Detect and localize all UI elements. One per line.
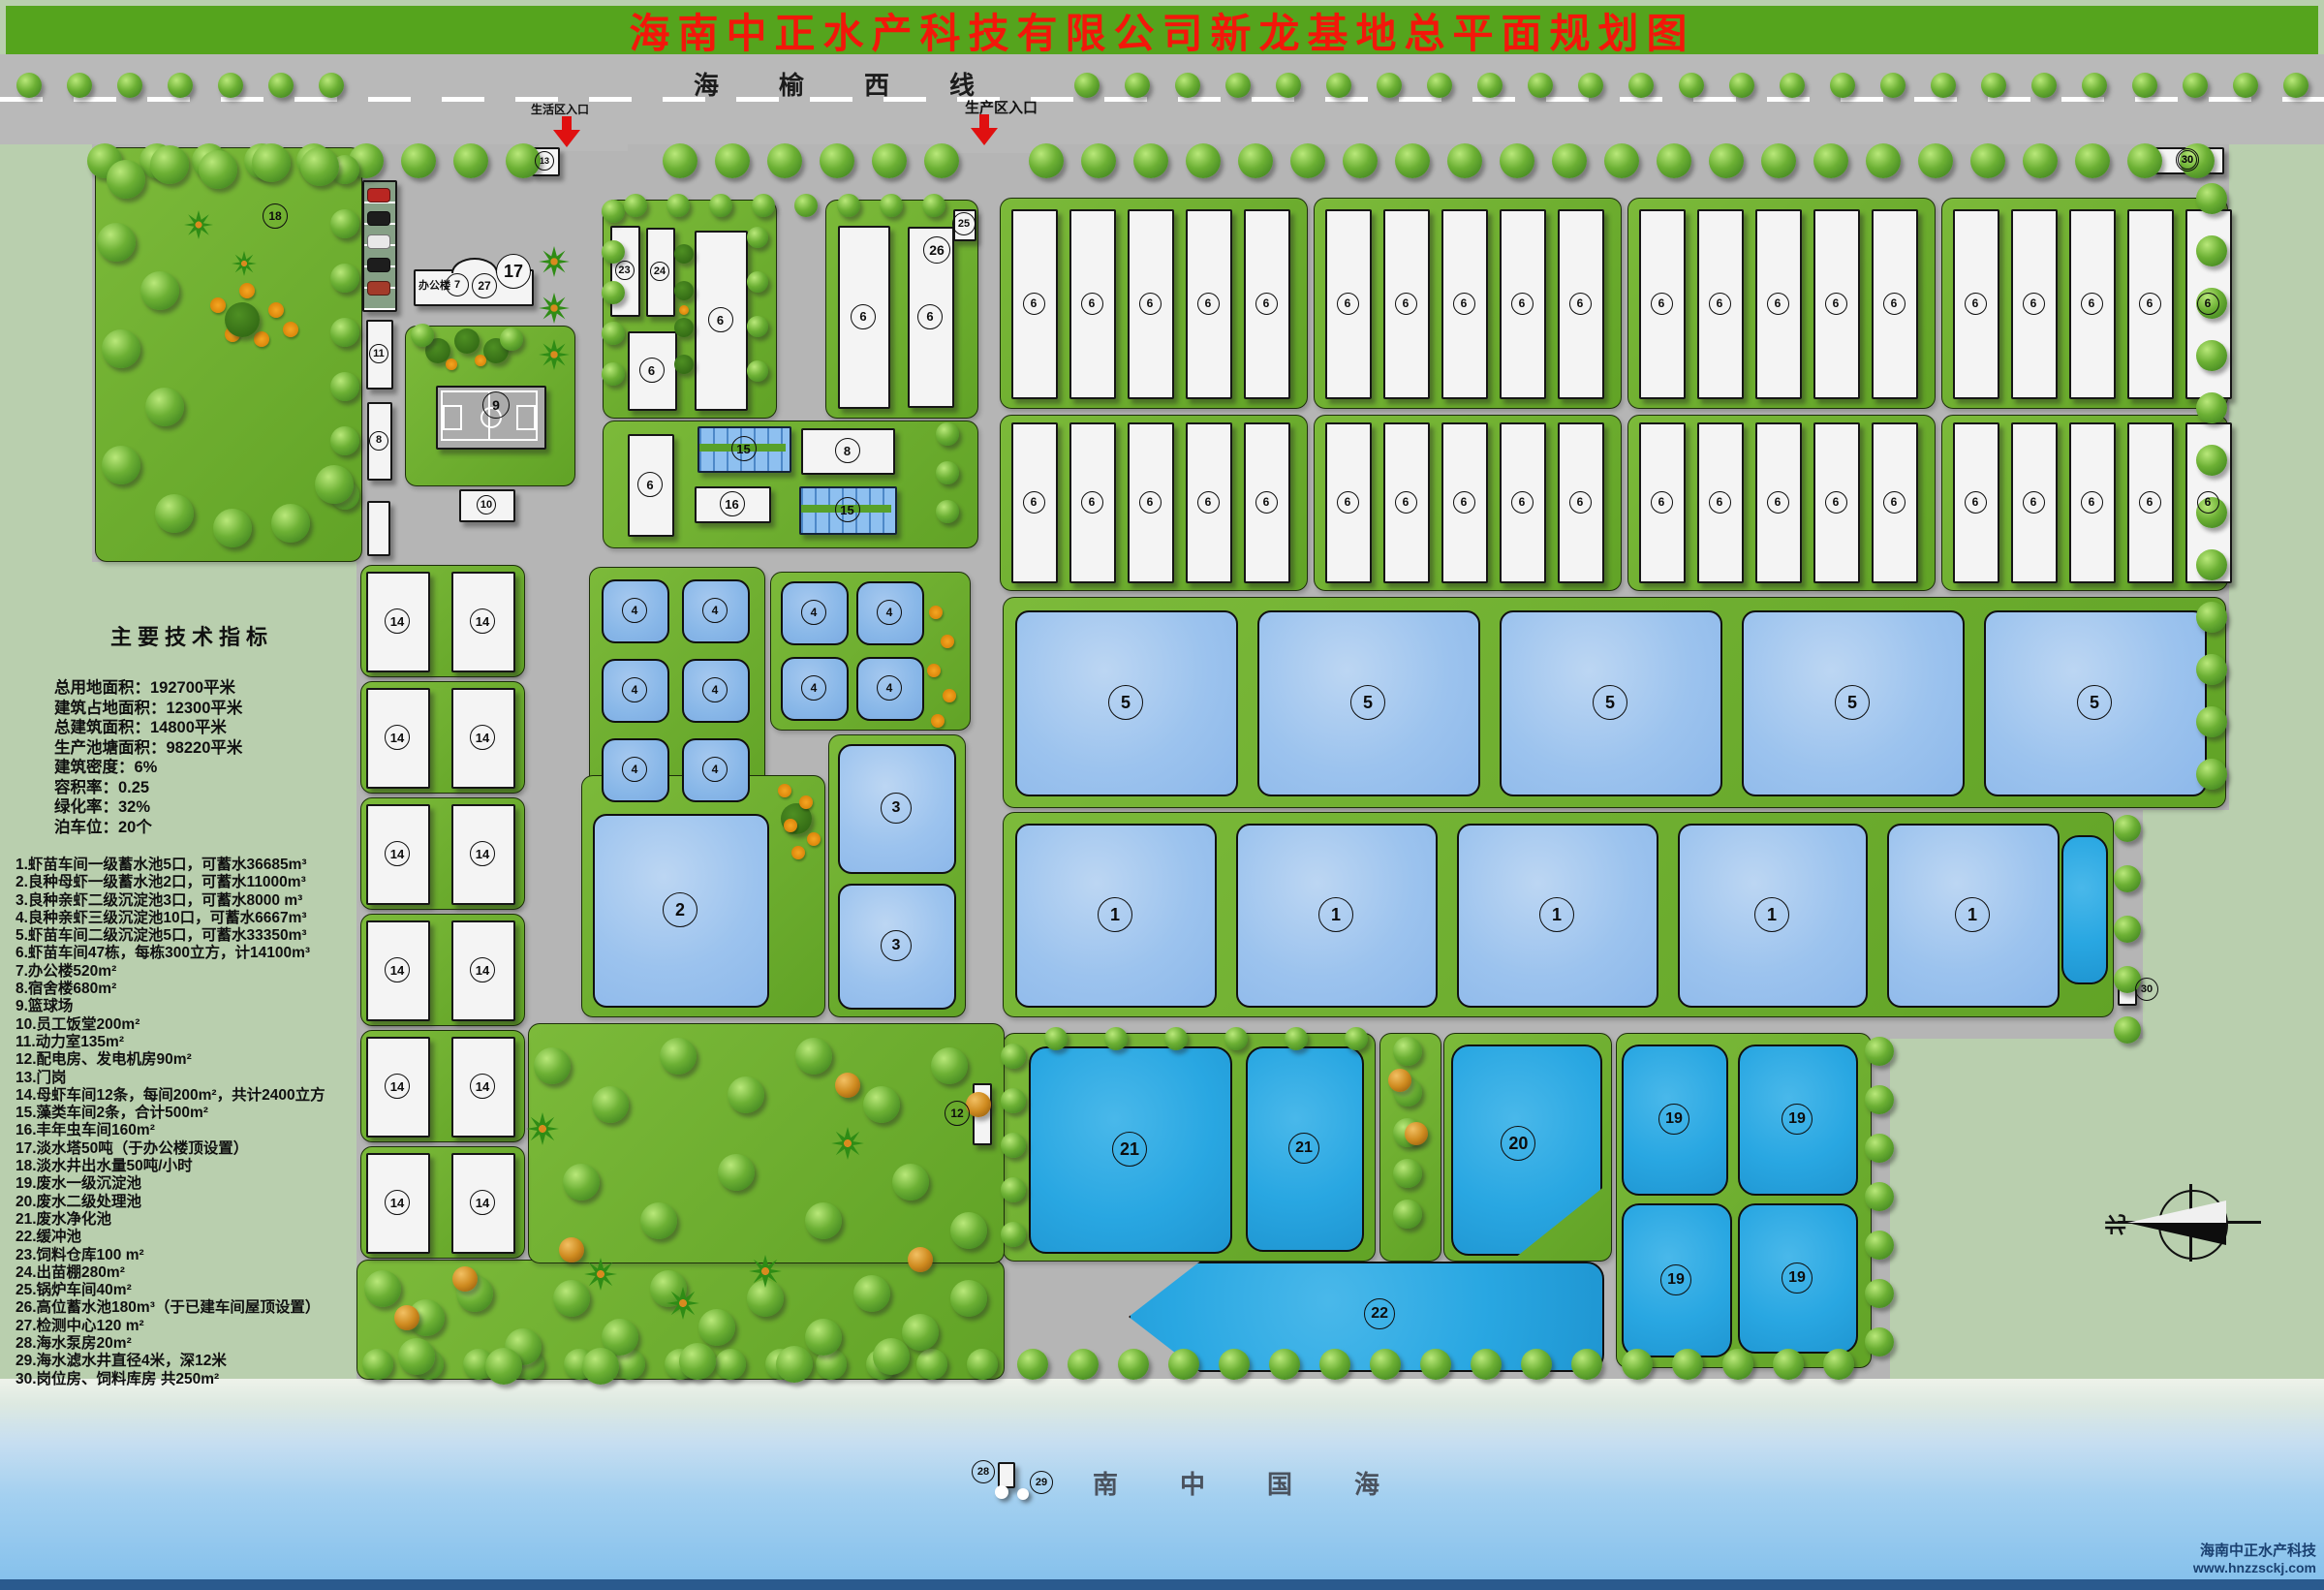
marker-27: 27 [472,273,497,298]
tree [1865,1134,1894,1163]
marker-19: 19 [1782,1104,1813,1135]
marker-18: 18 [263,203,288,229]
tree [446,359,457,370]
tree [1709,143,1744,178]
tree [1865,1182,1894,1211]
tree [679,1343,716,1380]
tree [315,465,354,504]
tree [709,194,732,217]
legend-item: 28.海水泵房20m² [15,1335,325,1353]
tree [1427,73,1452,98]
tree [1393,1037,1422,1066]
highway-road: 海榆西线 [0,54,2324,144]
legend-list: 1.虾苗车间一级蓄水池5口，可蓄水36685m³2.良种母虾一级蓄水池2口，可蓄… [15,857,325,1388]
marker-6: 6 [708,307,733,332]
tree [283,322,298,337]
tree [1578,73,1603,98]
tree [268,302,284,318]
marker-6: 6 [1453,491,1475,514]
marker-6: 6 [1651,491,1673,514]
marker-15: 15 [731,436,757,461]
marker-6: 6 [2023,293,2045,315]
marker-15: 15 [835,497,860,522]
road-centerline [0,97,2324,102]
marker-6: 6 [1965,293,1987,315]
sea-bottom-bar [0,1579,2324,1590]
tree [795,1038,832,1075]
marker-1: 1 [1955,897,1990,932]
marker-6: 6 [1337,491,1359,514]
marker-14: 14 [385,608,410,634]
tree [674,244,694,264]
tree [1528,73,1553,98]
tree [2233,73,2258,98]
tree [929,606,943,619]
tree [411,324,434,347]
tree [592,1086,629,1123]
marker-14: 14 [470,608,495,634]
tree [330,264,359,293]
tree [873,1338,910,1375]
tree [2196,549,2227,580]
tree [199,150,237,189]
tree [1017,1349,1048,1380]
marker-4: 4 [622,677,647,702]
marker-6: 6 [1255,491,1278,514]
tree [1125,73,1150,98]
tree [454,328,480,354]
tree [168,73,193,98]
marker-6: 6 [1569,293,1592,315]
tree [1319,1349,1350,1380]
tree [1918,143,1953,178]
tree [799,795,813,809]
tree [747,227,768,248]
marker-5: 5 [1593,685,1627,720]
tree [943,689,956,702]
marker-14: 14 [385,725,410,750]
technical-indicators: 主要技术指标 总用地面积：192700平米建筑占地面积：12300平米总建筑面积… [54,620,273,837]
tree [791,846,805,859]
tree [1571,1349,1602,1380]
marker-6: 6 [2023,491,2045,514]
tree [1420,1349,1451,1380]
marker-6: 6 [1569,491,1592,514]
marker-1: 1 [1539,897,1574,932]
legend-item: 24.出苗棚280m² [15,1264,325,1282]
marker-6: 6 [1453,293,1475,315]
marker-26: 26 [923,236,950,264]
marker-14: 14 [385,1190,410,1215]
tree [2196,706,2227,737]
marker-4: 4 [702,677,728,702]
tree [1224,1027,1248,1050]
marker-6: 6 [1883,491,1906,514]
legend-item: 17.淡水塔50吨（于办公楼顶设置） [15,1140,325,1158]
marker-29: 29 [1030,1471,1053,1494]
tree [1104,1027,1128,1050]
tree [1393,1200,1422,1229]
marker-4: 4 [702,757,728,782]
tree [539,246,570,277]
tree [718,1154,755,1191]
tree [2114,865,2141,892]
marker-6: 6 [2197,293,2219,315]
legend-item: 5.虾苗车间二级沉淀池5口，可蓄水33350m³ [15,927,325,945]
marker-6: 6 [1883,293,1906,315]
indicator-line: 建筑占地面积：12300平米 [54,699,273,719]
tree [747,316,768,337]
legend-item: 3.良种亲虾二级沉淀池3口，可蓄水8000 m³ [15,892,325,910]
tree [553,1280,590,1317]
marker-6: 6 [2081,293,2103,315]
page-title: 海南中正水产科技有限公司新龙基地总平面规划图 [629,1,1694,60]
tree [2075,143,2110,178]
tree [239,283,255,298]
tree [2196,183,2227,214]
tree [1326,73,1351,98]
marker-6: 6 [1255,293,1278,315]
tree [1813,143,1848,178]
marker-6: 6 [1395,491,1417,514]
marker-6: 6 [917,304,943,329]
tree [145,388,184,426]
tree [155,494,194,533]
marker-4: 4 [801,675,826,701]
building-small [367,501,390,556]
marker-6: 6 [1825,293,1847,315]
entrance-arrow-living [553,116,580,147]
tree [784,819,797,832]
legend-item: 10.员工饭堂200m² [15,1016,325,1034]
tree [582,1348,619,1385]
tree [394,1305,419,1330]
marker-14: 14 [385,841,410,866]
tree [232,251,257,276]
tree [2114,815,2141,842]
legend-item: 6.虾苗车间47栋，每栋300立方，计14100m³ [15,945,325,962]
tree [1970,143,2005,178]
tree [880,194,903,217]
marker-12: 12 [945,1101,970,1126]
marker-23: 23 [615,261,635,280]
tree [1175,73,1200,98]
marker-24: 24 [650,262,669,281]
tree [584,1258,617,1291]
tree [1405,1122,1428,1145]
tree [16,73,42,98]
marker-4: 4 [877,675,902,701]
watermark: 海南中正水产科技 www.hnzzsckj.com [2193,1540,2316,1575]
tree [1729,73,1754,98]
tree [941,635,954,648]
tree [908,1247,933,1272]
tree [698,1309,735,1346]
marker-21: 21 [1288,1133,1319,1164]
tree [1276,73,1301,98]
tree [805,1202,842,1239]
marker-6: 6 [1395,293,1417,315]
tree [102,446,140,484]
tree [1377,73,1402,98]
tree [663,143,697,178]
legend-item: 1.虾苗车间一级蓄水池5口，可蓄水36685m³ [15,857,325,874]
tree [1388,1069,1411,1092]
tree [252,143,291,182]
indicator-line: 生产池塘面积：98220平米 [54,738,273,759]
tree [1830,73,1855,98]
tree [2127,143,2162,178]
tree [1395,143,1430,178]
tree [398,1338,435,1375]
marker-6: 6 [851,304,876,329]
well-dot [1017,1488,1029,1500]
tree [140,271,179,310]
tree [1471,1349,1502,1380]
marker-6: 6 [1139,491,1162,514]
marker-10: 10 [477,495,496,514]
tree [526,1112,559,1145]
tree [210,297,226,313]
tree [916,1349,947,1380]
legend-item: 4.良种亲虾三级沉淀池10口，可蓄水6667m³ [15,910,325,927]
site-plan-canvas: 444444444423355555111112121201919191922办… [0,0,2324,1590]
marker-28: 28 [972,1460,995,1483]
marker-5: 5 [1835,685,1870,720]
tree [1393,1159,1422,1188]
marker-14: 14 [470,725,495,750]
tree [475,355,486,366]
tree [2114,916,2141,943]
indicator-line: 容积率：0.25 [54,778,273,798]
tree [1081,143,1116,178]
marker-6: 6 [1023,491,1045,514]
tree [2023,143,2058,178]
tree [679,305,689,315]
marker-6: 6 [2197,491,2219,514]
marker-14: 14 [470,1074,495,1099]
legend-item: 20.废水二级处理池 [15,1194,325,1211]
tree [2114,1016,2141,1044]
parked-car [367,211,390,226]
tree [330,372,359,401]
tree [1866,143,1901,178]
marker-9: 9 [482,391,510,419]
marker-6: 6 [1709,491,1731,514]
tree [1657,143,1691,178]
tree [931,1047,968,1084]
tree [2196,654,2227,685]
tree [300,147,339,186]
tree [1029,143,1064,178]
marker-4: 4 [877,600,902,625]
marker-6: 6 [1197,293,1220,315]
legend-item: 11.动力室135m² [15,1034,325,1051]
tree [666,1287,699,1320]
indicator-line: 总用地面积：192700平米 [54,678,273,699]
marker-16: 16 [720,491,745,516]
tree [1370,1349,1401,1380]
tree [807,832,821,846]
tree [1521,1349,1552,1380]
tree [1238,143,1273,178]
marker-4: 4 [702,598,728,623]
marker-4: 4 [622,757,647,782]
marker-2: 2 [663,892,697,927]
tree [2132,73,2157,98]
tree [1880,73,1906,98]
marker-30: 30 [2176,148,2199,171]
parked-car [367,258,390,272]
tree [1345,1027,1368,1050]
tree [1001,1177,1026,1202]
court-key-left [443,405,462,430]
tree [1133,143,1168,178]
marker-14: 14 [470,841,495,866]
tree [749,1255,782,1288]
marker-6: 6 [2139,491,2161,514]
parked-car [367,188,390,203]
tree [853,1275,890,1312]
tree [602,362,625,386]
tree [2196,602,2227,633]
tree [752,194,775,217]
marker-1: 1 [1098,897,1132,932]
marker-30: 30 [2135,978,2158,1001]
tree [767,143,802,178]
marker-6: 6 [1767,491,1789,514]
entrance-arrow-production [971,114,998,145]
tree [150,145,189,184]
tree [927,664,941,677]
tree [213,509,252,547]
court-key-right [516,405,536,430]
legend-item: 26.高位蓄水池180m³（于已建车间屋顶设置） [15,1299,325,1317]
tree [747,360,768,382]
tree [364,1270,401,1307]
tree [1865,1327,1894,1356]
tree [2031,73,2057,98]
legend-item: 18.淡水井出水量50吨/小时 [15,1158,325,1175]
marker-6: 6 [1337,293,1359,315]
tree [1118,1349,1149,1380]
tree [666,194,690,217]
tree [794,194,818,217]
tree [924,143,959,178]
tree [102,329,140,368]
marker-8: 8 [369,431,388,451]
legend-item: 16.丰年虫车间160m² [15,1122,325,1139]
building-small [998,1462,1015,1488]
tree [1044,1027,1068,1050]
indicator-line: 总建筑面积：14800平米 [54,718,273,738]
indicators-title: 主要技术指标 [110,620,273,651]
tree [1285,1027,1308,1050]
tree [2196,235,2227,266]
legend-item: 25.锅炉车间40m² [15,1282,325,1299]
tree [1865,1037,1894,1066]
tree [2196,392,2227,423]
tree [107,160,145,199]
marker-21: 21 [1112,1132,1147,1167]
tree [2082,73,2107,98]
tree [271,504,310,543]
tree [97,223,136,262]
tree [1679,73,1704,98]
tree [1219,1349,1250,1380]
tree [1269,1349,1300,1380]
tree [330,318,359,347]
tree [452,1266,478,1292]
marker-5: 5 [2077,685,2112,720]
tree [1186,143,1221,178]
tree [534,1047,571,1084]
marker-6: 6 [1511,293,1534,315]
tree [902,1314,939,1351]
tree [330,426,359,455]
tree [931,714,945,728]
legend-item: 15.藻类车间2条，合计500m² [15,1105,325,1122]
tree [660,1038,697,1075]
tree [1865,1231,1894,1260]
tree [401,143,436,178]
tree [805,1319,842,1356]
tree [184,210,213,239]
tree [1074,73,1100,98]
tree [831,1127,864,1160]
marker-6: 6 [1023,293,1045,315]
marker-6: 6 [1139,293,1162,315]
legend-item: 27.检测中心120 m² [15,1318,325,1335]
tree [453,143,488,178]
marker-4: 4 [622,598,647,623]
tree [892,1164,929,1200]
marker-5: 5 [1108,685,1143,720]
tree [539,339,570,370]
tree [1001,1088,1026,1113]
tree [1068,1349,1099,1380]
marker-14: 14 [385,957,410,982]
tree [2196,445,2227,476]
legend-item: 23.饲料仓库100 m² [15,1247,325,1264]
tree [674,318,694,337]
tree [776,1346,813,1383]
tree [254,331,269,347]
legend-item: 21.废水净化池 [15,1211,325,1229]
marker-6: 6 [2139,293,2161,315]
tree [1001,1133,1026,1158]
watermark-url: www.hnzzsckj.com [2193,1560,2316,1575]
marker-5: 5 [1350,685,1385,720]
tree [1001,1044,1026,1069]
tree [563,1164,600,1200]
tree [225,302,260,337]
legend-item: 19.废水一级沉淀池 [15,1175,325,1193]
title-banner: 海南中正水产科技有限公司新龙基地总平面规划图 [6,6,2318,54]
marker-25: 25 [952,212,976,235]
tree [1001,1222,1026,1247]
entrance-label-living: 生活区入口 [531,101,589,117]
marker-13: 13 [535,151,554,171]
tree [820,143,854,178]
pond-small [2061,835,2108,984]
tree [863,1086,900,1123]
marker-19: 19 [1782,1263,1813,1294]
office-name-label: 办公楼 [418,277,450,293]
sea-name-label: 南中国海 [1093,1465,1441,1501]
tree [2283,73,2309,98]
tree [2183,73,2208,98]
